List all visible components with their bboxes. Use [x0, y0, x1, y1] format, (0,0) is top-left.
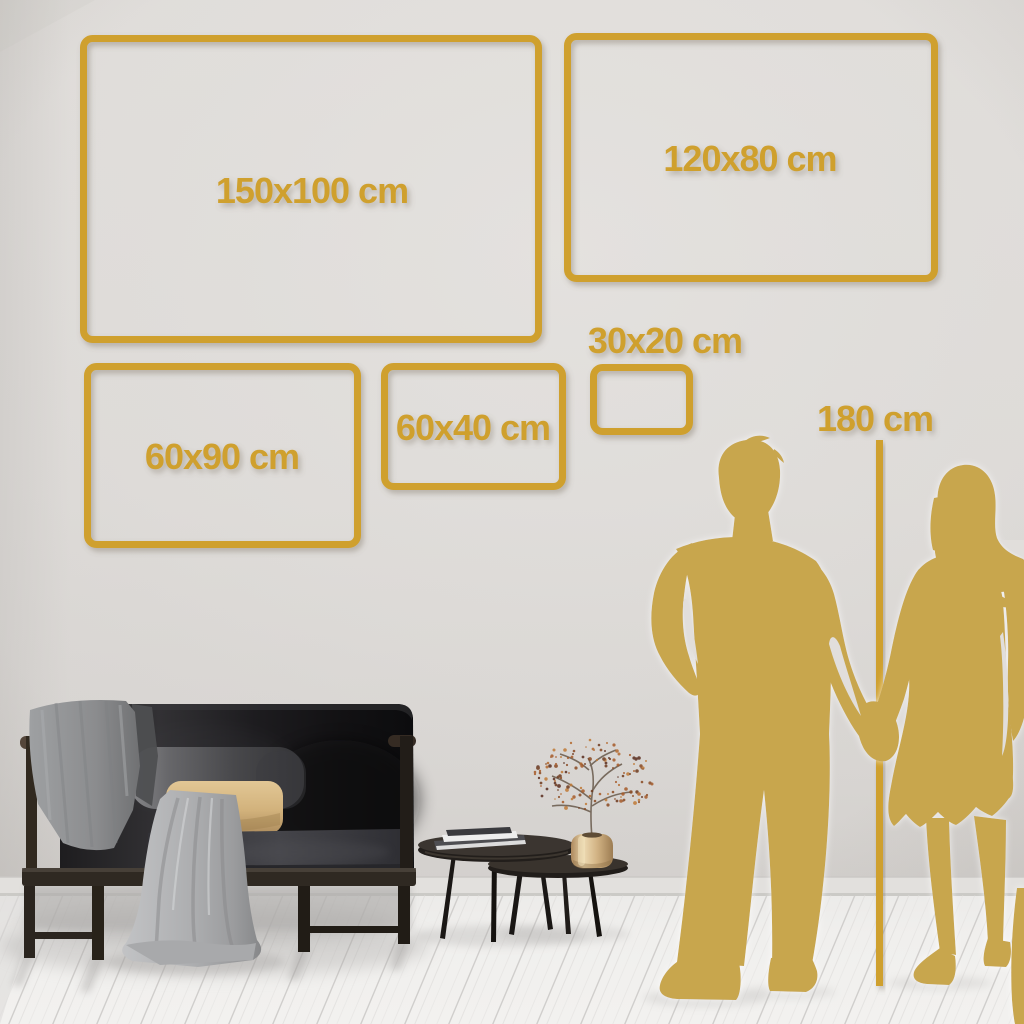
svg-text:180 cm: 180 cm: [817, 398, 933, 439]
svg-text:60x40 cm: 60x40 cm: [396, 407, 550, 448]
svg-text:30x20 cm: 30x20 cm: [588, 320, 742, 361]
svg-text:120x80 cm: 120x80 cm: [663, 138, 836, 179]
svg-text:150x100 cm: 150x100 cm: [216, 170, 408, 211]
svg-text:60x90 cm: 60x90 cm: [145, 436, 299, 477]
